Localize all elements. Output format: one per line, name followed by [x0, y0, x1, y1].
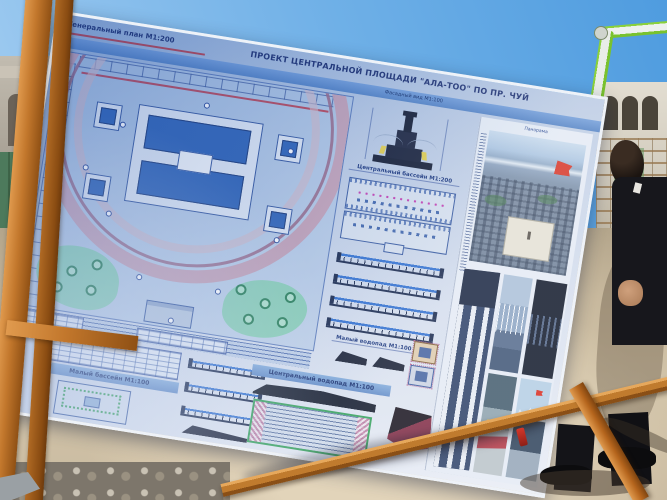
corner-pool-water: [99, 107, 117, 125]
detail-square: [408, 365, 435, 389]
corner-pool-bl: [82, 173, 112, 203]
arcade-shadow-top: [459, 269, 500, 309]
general-plan: [19, 50, 354, 351]
section-endcap: [439, 268, 444, 277]
corner-pool-water: [88, 178, 106, 196]
detail-square-core: [418, 347, 431, 359]
callout-dot: [214, 288, 221, 295]
pool-section-drawing: [180, 403, 259, 427]
corner-pool-tl: [93, 101, 123, 131]
section-posts: [180, 409, 258, 425]
person-hand: [618, 280, 643, 306]
corner-pool-br: [263, 205, 293, 235]
waterfall-mini-elevation: [335, 349, 368, 366]
section-endcap: [429, 333, 434, 342]
boom-joint: [594, 26, 608, 40]
fountain-jets: [495, 303, 528, 336]
pool-section-drawing: [184, 380, 263, 404]
dimension-line: [440, 119, 449, 171]
fountain-column: [403, 115, 414, 133]
dimension-line: [364, 108, 373, 160]
section-endcap: [432, 312, 437, 321]
section-endcap: [436, 290, 441, 299]
tree: [85, 284, 98, 297]
section-posts: [184, 386, 262, 402]
callout-dot: [136, 274, 143, 281]
stage-platform: [143, 300, 194, 329]
small-basin-plan: [53, 380, 131, 425]
building-arch: [642, 96, 658, 130]
basin-center-tab: [383, 242, 404, 255]
waterfall-plan-wing: [249, 401, 267, 442]
construction-site-photo: Генеральный план М1:200 ПРОЕКТ ЦЕНТРАЛЬН…: [0, 0, 667, 500]
green-zone-right: [219, 274, 311, 344]
waterfall-mini-elevation: [372, 355, 405, 372]
detail-square: [411, 341, 438, 365]
tree: [91, 259, 104, 272]
detail-square-core: [414, 371, 427, 383]
dark-wedge-drawing: [181, 424, 248, 443]
fountain-elevation: [370, 103, 443, 174]
tree: [235, 283, 248, 296]
building-arch: [622, 96, 638, 130]
person-torso: [612, 177, 667, 345]
tree: [66, 265, 79, 278]
tree: [259, 297, 272, 310]
main-pool: [124, 104, 264, 221]
tree: [284, 291, 297, 304]
tree: [242, 313, 255, 326]
corner-pool-water: [269, 211, 287, 229]
tree: [276, 316, 289, 329]
